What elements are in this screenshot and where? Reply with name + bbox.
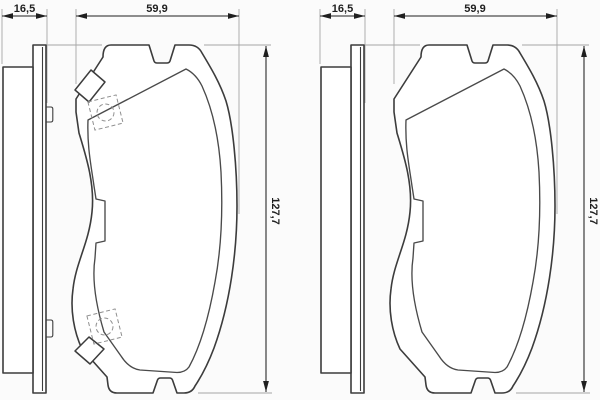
right-thickness-label: 16,5: [332, 3, 353, 15]
left-width-label: 59,9: [146, 3, 167, 15]
left-side-view: [3, 45, 46, 393]
brake-pad-technical-drawing: 16,5 59,9 127,7 16,5 59,9 127,7: [0, 0, 600, 400]
right-height-label: 127,7: [587, 197, 599, 225]
right-side-view: [321, 45, 364, 393]
left-front-view-backplate: [72, 45, 237, 393]
left-height-label: 127,7: [269, 197, 281, 225]
left-thickness-label: 16,5: [14, 3, 35, 15]
side-view-lower-tab: [46, 320, 53, 337]
right-front-view-backplate: [390, 45, 555, 393]
right-pad-drawing: 16,5 59,9 127,7: [320, 3, 599, 393]
right-width-label: 59,9: [464, 3, 485, 15]
side-view-upper-tab: [46, 107, 53, 122]
left-pad-drawing: 16,5 59,9 127,7: [2, 3, 281, 393]
drawing-canvas: 16,5 59,9 127,7 16,5 59,9 127,7: [0, 0, 600, 400]
